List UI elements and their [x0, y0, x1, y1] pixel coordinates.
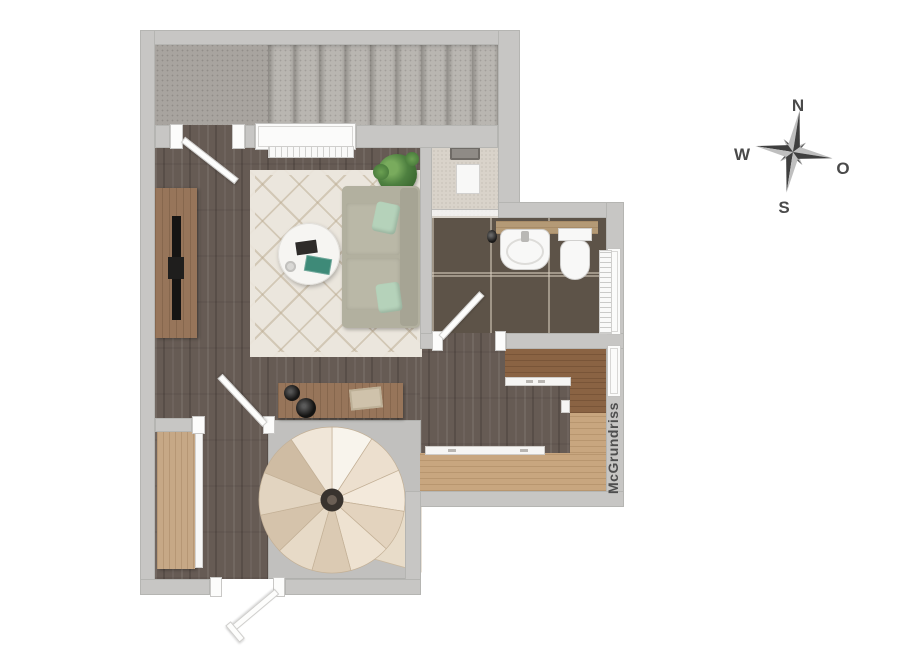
staircase-steps	[268, 43, 498, 127]
sofa-pillow	[375, 281, 403, 313]
wardrobe-door-white	[195, 430, 203, 568]
wardrobe	[157, 428, 195, 569]
radiator-bathroom	[599, 250, 612, 334]
coffee-table	[278, 223, 340, 285]
watermark-text: McGrundriss	[605, 396, 623, 494]
sofa-backrest	[400, 188, 418, 326]
exterior-wall-left	[140, 30, 155, 595]
lower-hall-wall	[155, 418, 192, 432]
stair-hall-right-wall	[498, 30, 520, 218]
exterior-wall-bottom	[140, 579, 210, 595]
floor-plan-canvas: McGrundriss N W O S	[0, 0, 920, 661]
spiral-staircase	[256, 424, 426, 584]
kitchen-counter-tall	[505, 349, 606, 379]
exterior-wall-top	[140, 30, 520, 45]
kitchen-cabinet-front-right	[561, 400, 570, 413]
toilet-bowl	[560, 240, 590, 280]
hall-bottom-wall	[245, 125, 255, 148]
compass-east-label: O	[836, 159, 849, 178]
door-jamb	[192, 416, 205, 434]
glass-cup	[285, 261, 296, 272]
wash-basin-bowl	[506, 238, 544, 265]
vase-large	[296, 398, 316, 418]
shower-glass-partition	[432, 209, 498, 216]
exterior-wall-bottom	[285, 579, 421, 595]
compass-north-label: N	[792, 96, 804, 115]
tv-mount	[168, 257, 184, 279]
cabinet-handle	[448, 449, 456, 452]
kitchen-counter-low-bottom	[420, 453, 606, 491]
door-jamb	[170, 124, 183, 149]
door-jamb	[210, 577, 222, 597]
shower-panel	[456, 164, 480, 194]
bathroom-left-wall	[420, 145, 432, 349]
kitchen-window	[607, 345, 621, 397]
tray	[349, 386, 383, 410]
vase-small	[284, 385, 300, 401]
door-jamb	[495, 331, 506, 351]
compass-rose: N W O S	[715, 80, 875, 230]
compass-west-label: W	[734, 145, 751, 164]
terrace-door-leaf	[229, 589, 279, 633]
cabinet-handle	[520, 449, 528, 452]
cabinet-handle	[526, 380, 533, 383]
kitchen-counter-tall-right	[570, 379, 606, 413]
stair-hall-landing	[155, 43, 268, 127]
radiator-living	[268, 146, 354, 158]
hall-bottom-wall	[155, 125, 170, 148]
compass-south-label: S	[778, 198, 789, 217]
kitchen-counter-low-right	[570, 413, 606, 453]
cosmetic-bottle	[487, 230, 497, 243]
faucet	[521, 231, 529, 242]
cabinet-handle	[538, 380, 545, 383]
hall-bottom-wall	[356, 125, 498, 148]
shower-fitting	[450, 147, 480, 160]
door-jamb	[232, 124, 245, 149]
kitchen-bottom-wall	[405, 491, 624, 507]
